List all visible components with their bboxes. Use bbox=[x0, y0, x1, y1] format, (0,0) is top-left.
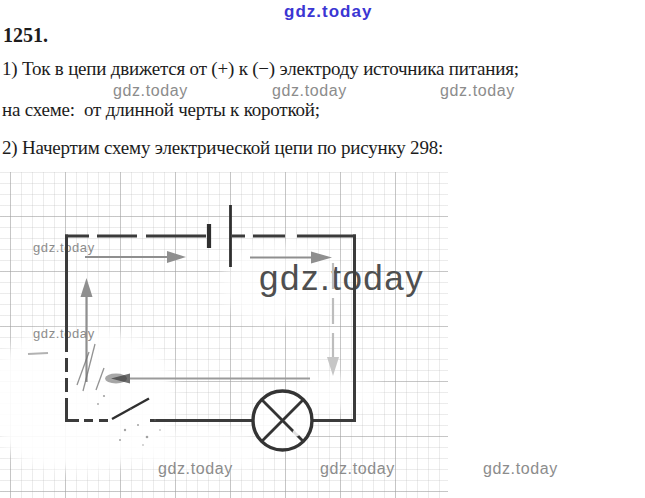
lamp-symbol bbox=[253, 391, 312, 450]
solution-page: gdz.today 1251. 1) Ток в цепи движется о… bbox=[0, 0, 645, 498]
current-arrow-top-right bbox=[250, 252, 332, 264]
current-arrow-top-left bbox=[85, 251, 186, 263]
current-arrows bbox=[81, 251, 340, 384]
current-arrow-left-up bbox=[81, 278, 93, 382]
current-arrow-right-down bbox=[327, 263, 339, 376]
current-arrow-bottom-left bbox=[105, 374, 310, 384]
wire-bottom-left-corner bbox=[67, 410, 80, 421]
scan-gap-artifact bbox=[293, 430, 300, 437]
circuit-schematic bbox=[0, 0, 645, 498]
